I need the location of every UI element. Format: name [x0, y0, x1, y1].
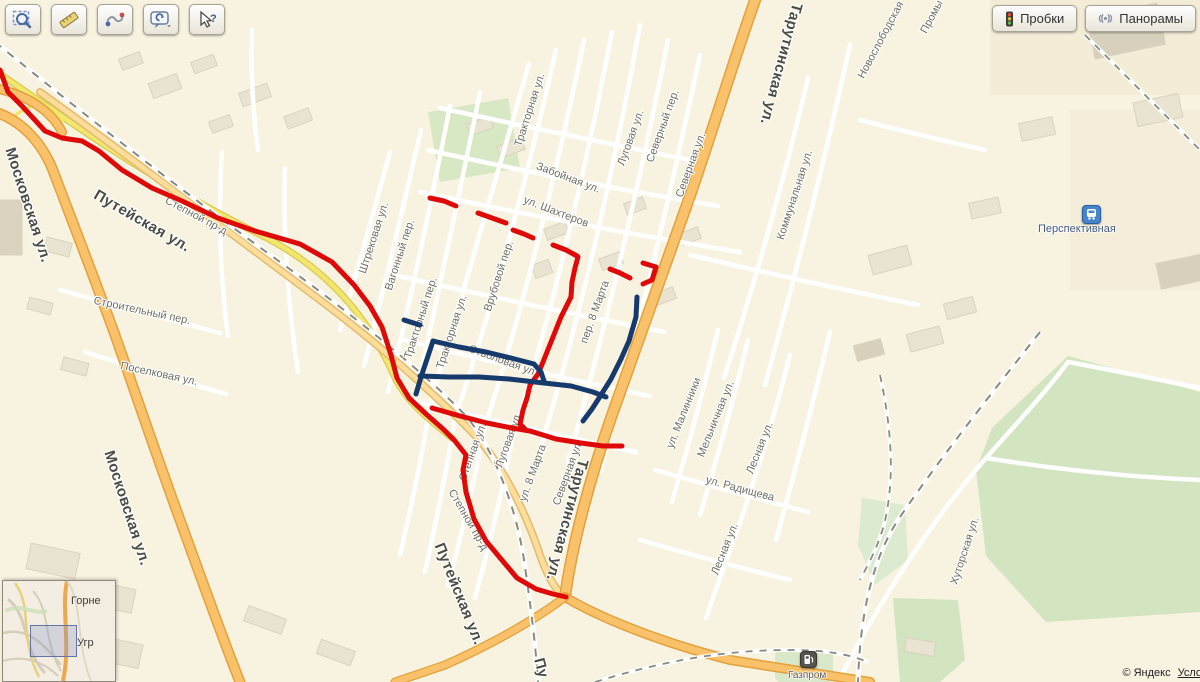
panoramas-icon [1098, 11, 1113, 26]
route-tool-button[interactable] [97, 4, 133, 35]
svg-text:?: ? [210, 13, 217, 25]
map-stage: Московская ул.Московская ул.Путейская ул… [0, 0, 1200, 682]
panoramas-button-label: Панорамы [1119, 11, 1183, 26]
traffic-light-icon [1005, 11, 1014, 27]
feedback-bubble-icon [149, 10, 173, 30]
zoom-select-button[interactable] [5, 4, 41, 35]
ruler-button[interactable] [51, 4, 87, 35]
minimap-label: Угр [77, 637, 94, 649]
map-mode-buttons: Пробки Панорамы [992, 5, 1196, 32]
fuel-station-label: Газпром [788, 670, 826, 681]
route-curve-icon [104, 10, 126, 30]
fuel-station-poi[interactable]: Газпром [800, 651, 817, 668]
map-canvas[interactable] [0, 0, 1200, 682]
railway-station-poi[interactable]: Перспективная [1082, 205, 1101, 224]
fuel-pump-icon[interactable] [800, 651, 817, 668]
attribution: © ЯндексУслови [1122, 667, 1200, 679]
panoramas-button[interactable]: Панорамы [1085, 5, 1196, 32]
help-cursor-button[interactable]: ? [189, 4, 225, 35]
map-toolbar: ? [5, 4, 225, 35]
overview-minimap[interactable]: Горне Угр [2, 580, 116, 682]
railway-station-label: Перспективная [1038, 223, 1116, 235]
traffic-button-label: Пробки [1020, 11, 1064, 26]
traffic-button[interactable]: Пробки [992, 5, 1077, 32]
cursor-question-icon: ? [196, 10, 218, 30]
minimap-label: Горне [71, 595, 101, 607]
railway-station-icon[interactable] [1082, 205, 1101, 224]
copyright-text: © Яндекс [1122, 667, 1170, 679]
feedback-button[interactable] [143, 4, 179, 35]
minimap-viewport[interactable] [30, 625, 77, 657]
magnifier-select-icon [12, 10, 34, 30]
terms-link[interactable]: Услови [1178, 667, 1200, 679]
ruler-icon [58, 10, 80, 30]
